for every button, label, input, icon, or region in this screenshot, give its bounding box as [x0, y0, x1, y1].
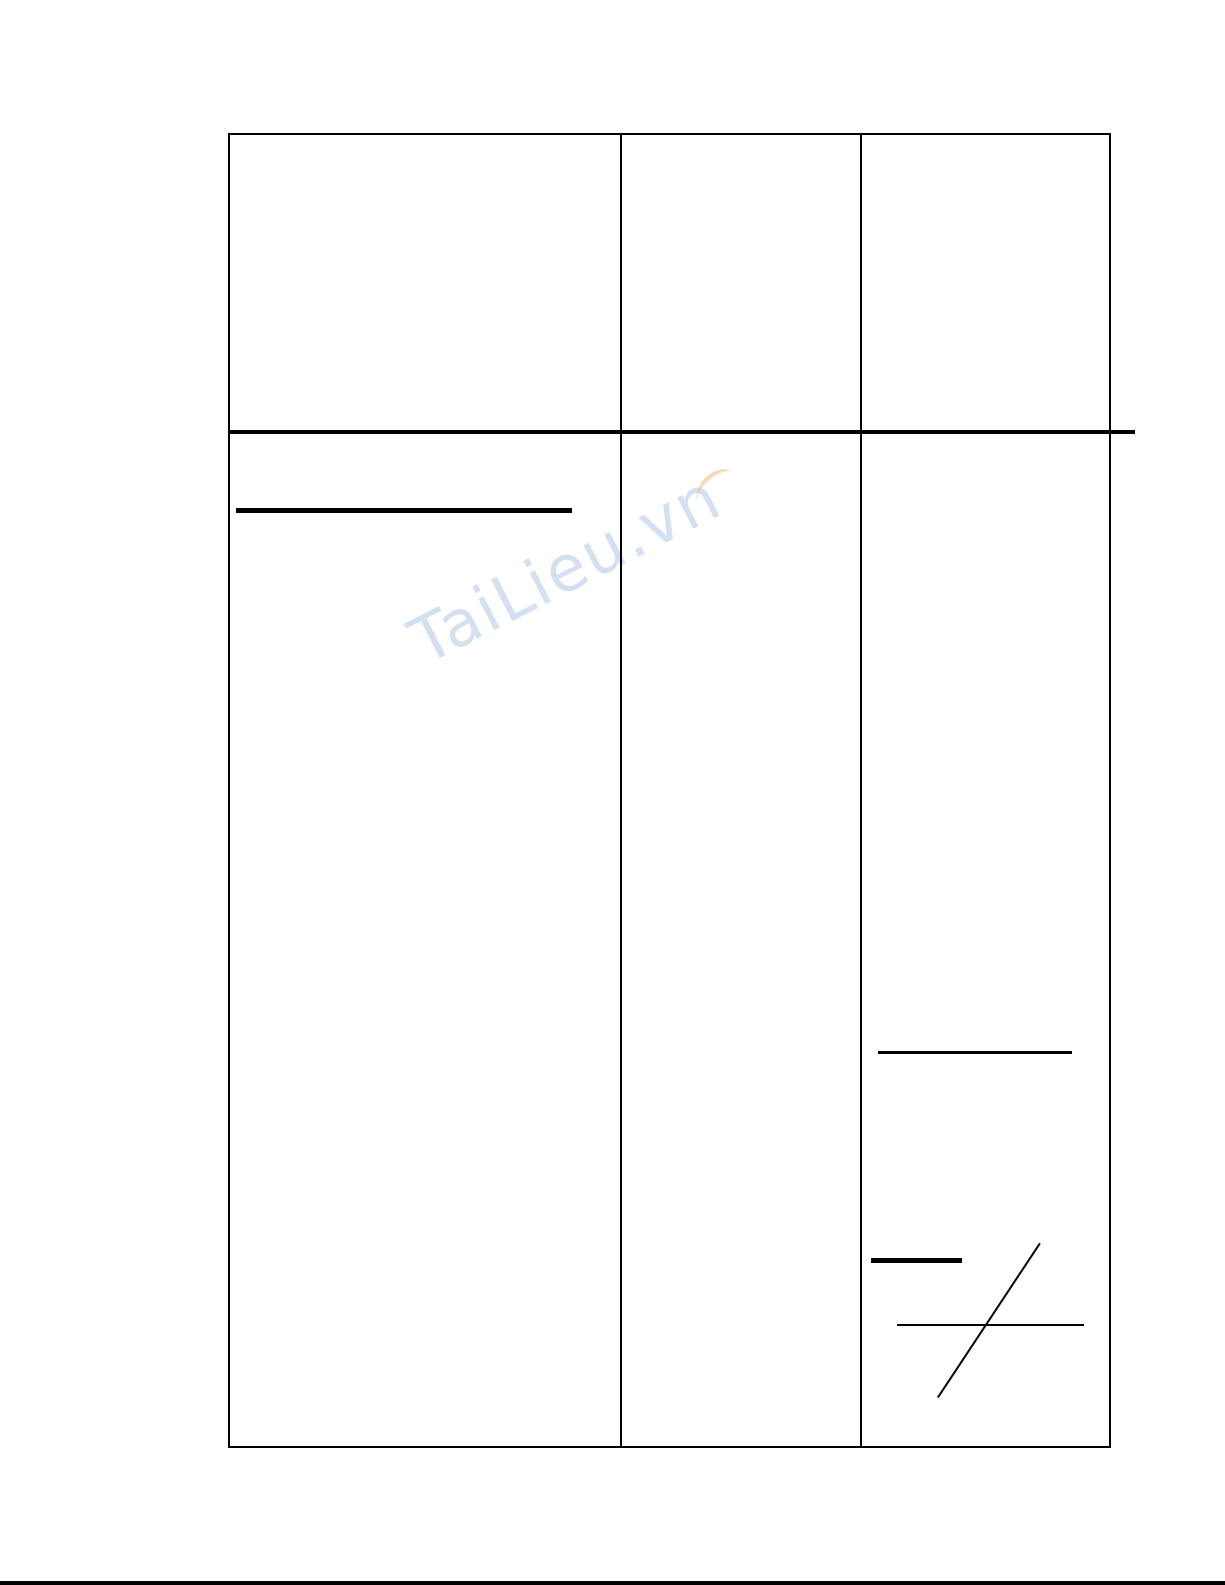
- table-top-border: [228, 133, 1111, 135]
- table-header-row-divider: [228, 430, 1135, 434]
- table-column-divider-2: [860, 133, 862, 1448]
- document-page: TaiLieu.vn: [0, 0, 1225, 1585]
- left-cell-thick-underline: [236, 508, 572, 513]
- watermark: TaiLieu.vn: [365, 435, 767, 706]
- right-cell-diagonal-stroke: [937, 1243, 1041, 1398]
- right-cell-short-thick-line: [871, 1258, 962, 1263]
- watermark-text: TaiLieu.vn: [399, 460, 733, 679]
- table-bottom-border: [228, 1446, 1111, 1448]
- table-left-border: [228, 133, 230, 1448]
- right-cell-thin-line: [897, 1324, 1084, 1326]
- right-cell-horizontal-line: [878, 1051, 1072, 1054]
- page-bottom-bar: [0, 1581, 1225, 1585]
- table-column-divider-1: [620, 133, 622, 1448]
- watermark-swoosh-icon: [683, 459, 740, 509]
- table-right-border: [1109, 133, 1111, 1448]
